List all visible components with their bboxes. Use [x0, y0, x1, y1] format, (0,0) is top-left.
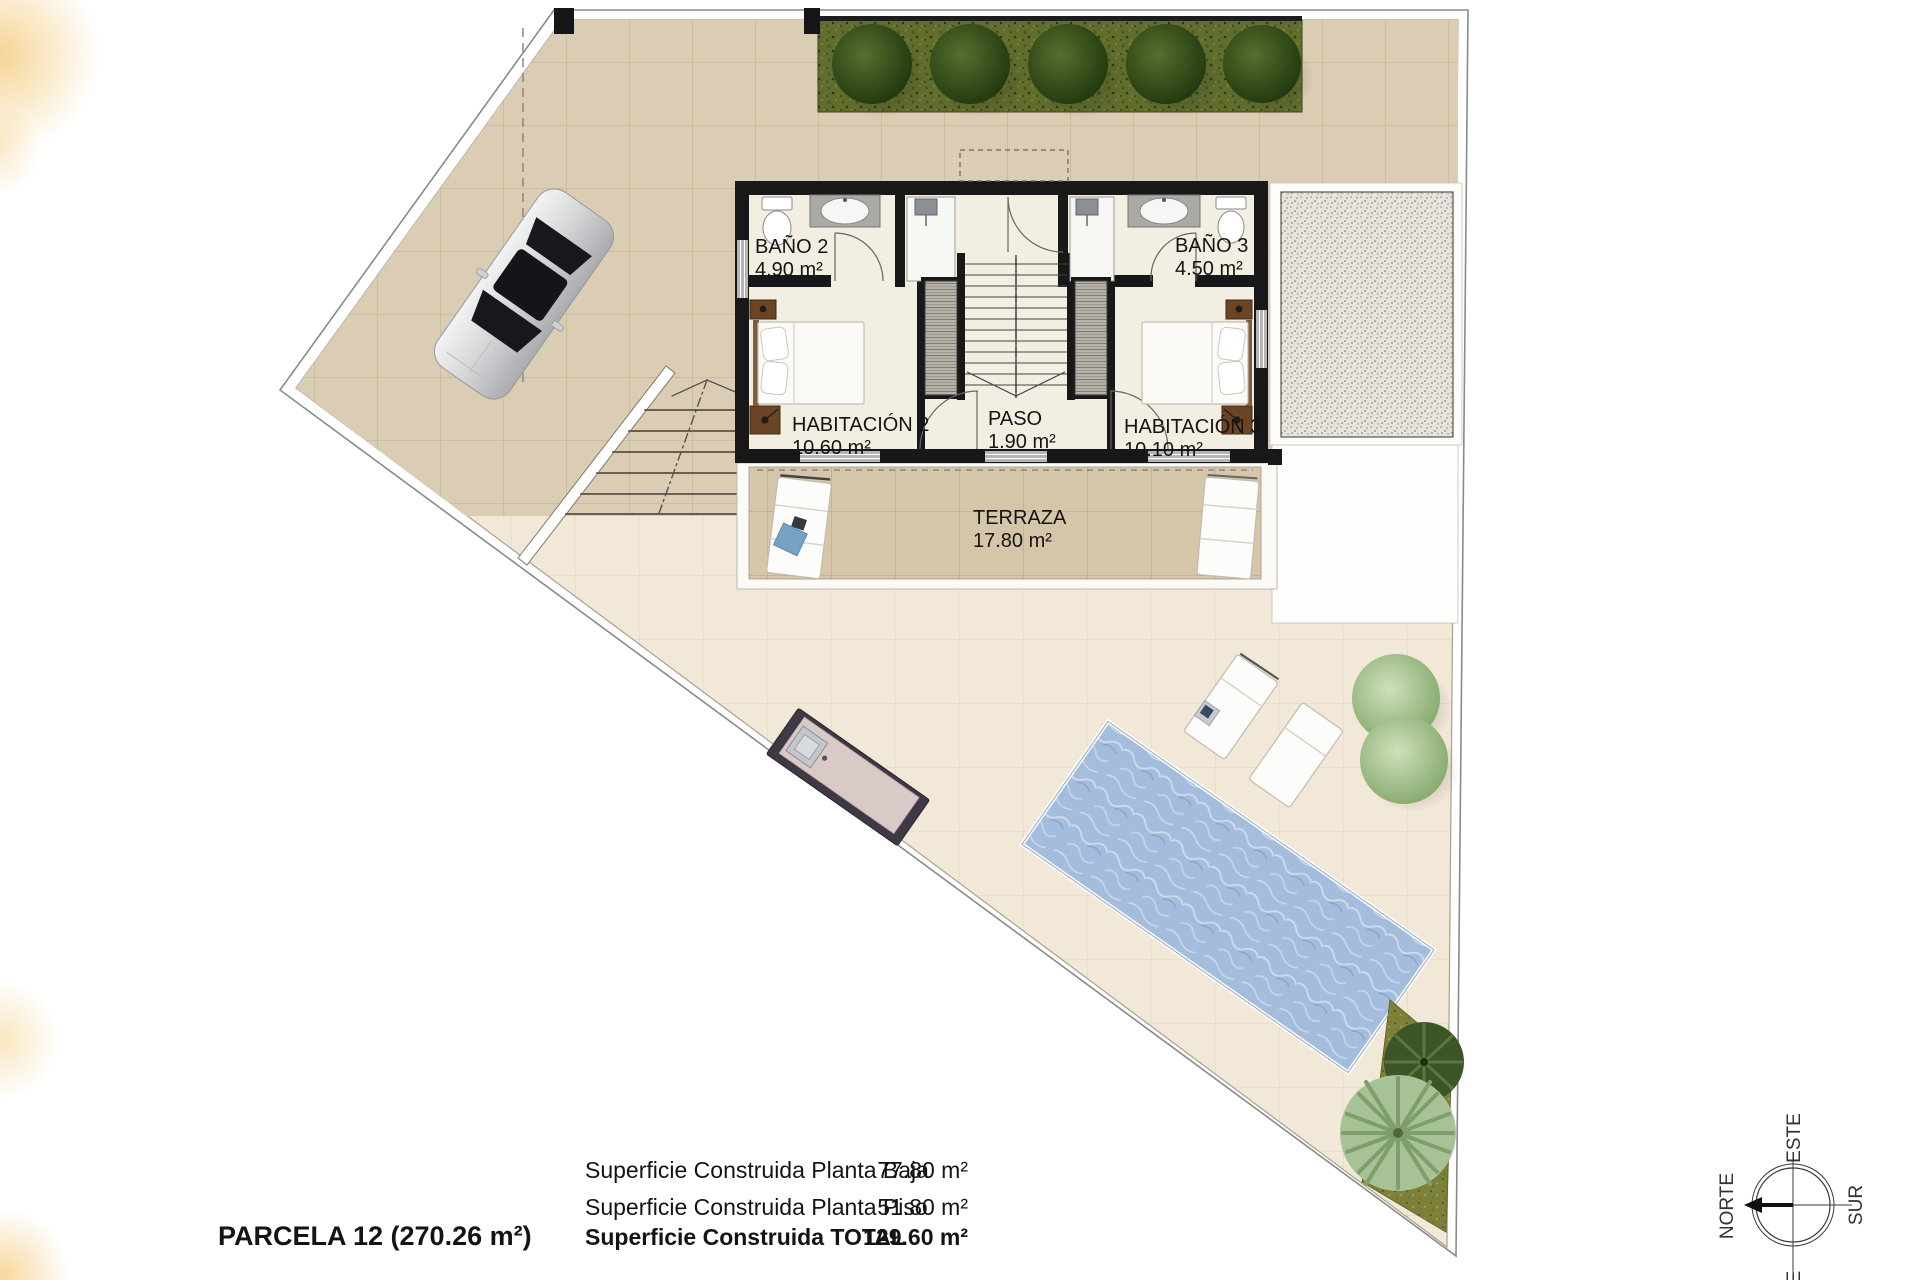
compass-label-south: SUR: [1846, 1185, 1867, 1225]
gravel-area: [1270, 183, 1462, 445]
summary-block: Superficie Construida Planta Baja 77.80 …: [218, 1157, 968, 1251]
room-area-hab3: 10.10 m²: [1124, 439, 1203, 461]
side-patio: [1272, 445, 1458, 623]
summary-row-value: 77.80 m²: [877, 1157, 968, 1183]
tree-icon: [1360, 716, 1448, 804]
room-label-terraza: TERRAZA: [973, 507, 1067, 529]
toilet-icon: [1216, 197, 1246, 209]
tree-icon: [832, 24, 912, 104]
tree-icon: [1126, 24, 1206, 104]
terrace-lounger: [766, 473, 832, 579]
floor-plan-drawing: BAÑO 2 4.90 m² BAÑO 3 4.50 m² HABITACIÓN…: [0, 0, 1920, 1280]
palm-tree-icon: [1340, 1075, 1456, 1191]
tree-icon: [930, 24, 1010, 104]
room-area-paso: 1.90 m²: [988, 431, 1056, 453]
toilet-icon: [762, 197, 792, 210]
room-label-paso: PASO: [988, 408, 1042, 430]
compass-label-east: ESTE: [1784, 1113, 1805, 1163]
floor-plan-page: BAÑO 2 4.90 m² BAÑO 3 4.50 m² HABITACIÓN…: [0, 0, 1920, 1280]
compass-rose: NORTE ESTE SUR OESTE: [1717, 1113, 1867, 1280]
room-area-hab2: 10.60 m²: [792, 437, 871, 459]
summary-row-value: 129.60 m²: [863, 1224, 968, 1250]
terrace-lounger: [1197, 474, 1260, 579]
room-label-bano3: BAÑO 3: [1175, 233, 1248, 257]
boundary-wall-stub: [804, 8, 820, 34]
tree-icon: [1028, 24, 1108, 104]
page-edge-tints: [0, 0, 100, 1280]
summary-row-value: 51.80 m²: [877, 1194, 968, 1220]
summary-row-label: Superficie Construida Planta Piso: [585, 1194, 928, 1220]
room-label-hab2: HABITACIÓN 2: [792, 413, 929, 436]
room-label-bano2: BAÑO 2: [755, 234, 828, 258]
compass-label-west: OESTE: [1784, 1271, 1805, 1280]
tree-icon: [1223, 25, 1301, 103]
garden-hedge: [818, 16, 1314, 118]
compass-label-north: NORTE: [1717, 1173, 1738, 1239]
boundary-wall-stub: [554, 8, 574, 34]
room-label-hab3: HABITACIÓN 3: [1124, 415, 1261, 438]
summary-row-label: Superficie Construida TOTAL: [585, 1224, 905, 1250]
parcela-label: PARCELA 12 (270.26 m²): [218, 1221, 532, 1251]
room-area-terraza: 17.80 m²: [973, 530, 1052, 552]
room-area-bano3: 4.50 m²: [1175, 258, 1243, 280]
room-area-bano2: 4.90 m²: [755, 259, 823, 281]
